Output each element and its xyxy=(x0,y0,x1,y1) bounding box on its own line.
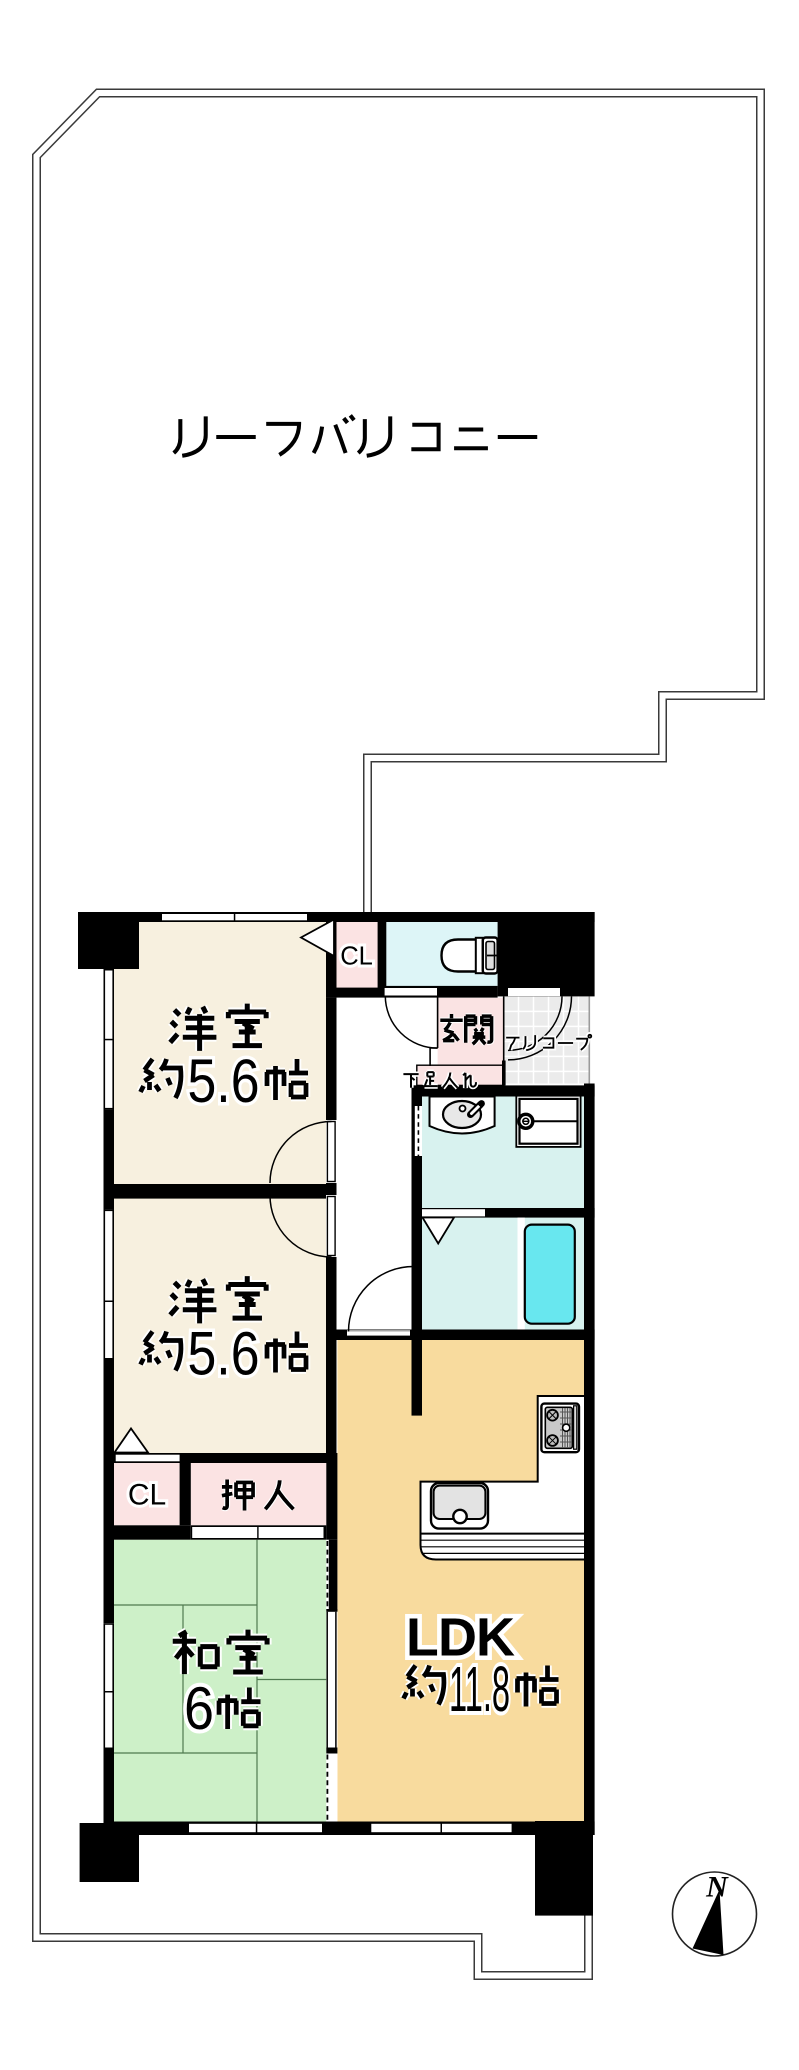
svg-text:11.8: 11.8 xyxy=(449,1653,510,1725)
svg-text:5.6: 5.6 xyxy=(188,1320,260,1388)
svg-text:N: N xyxy=(705,1871,729,1904)
svg-text:6: 6 xyxy=(184,1675,214,1742)
svg-text:CL: CL xyxy=(128,1479,166,1512)
svg-text:5.6: 5.6 xyxy=(188,1047,260,1115)
svg-text:CL: CL xyxy=(340,943,373,971)
